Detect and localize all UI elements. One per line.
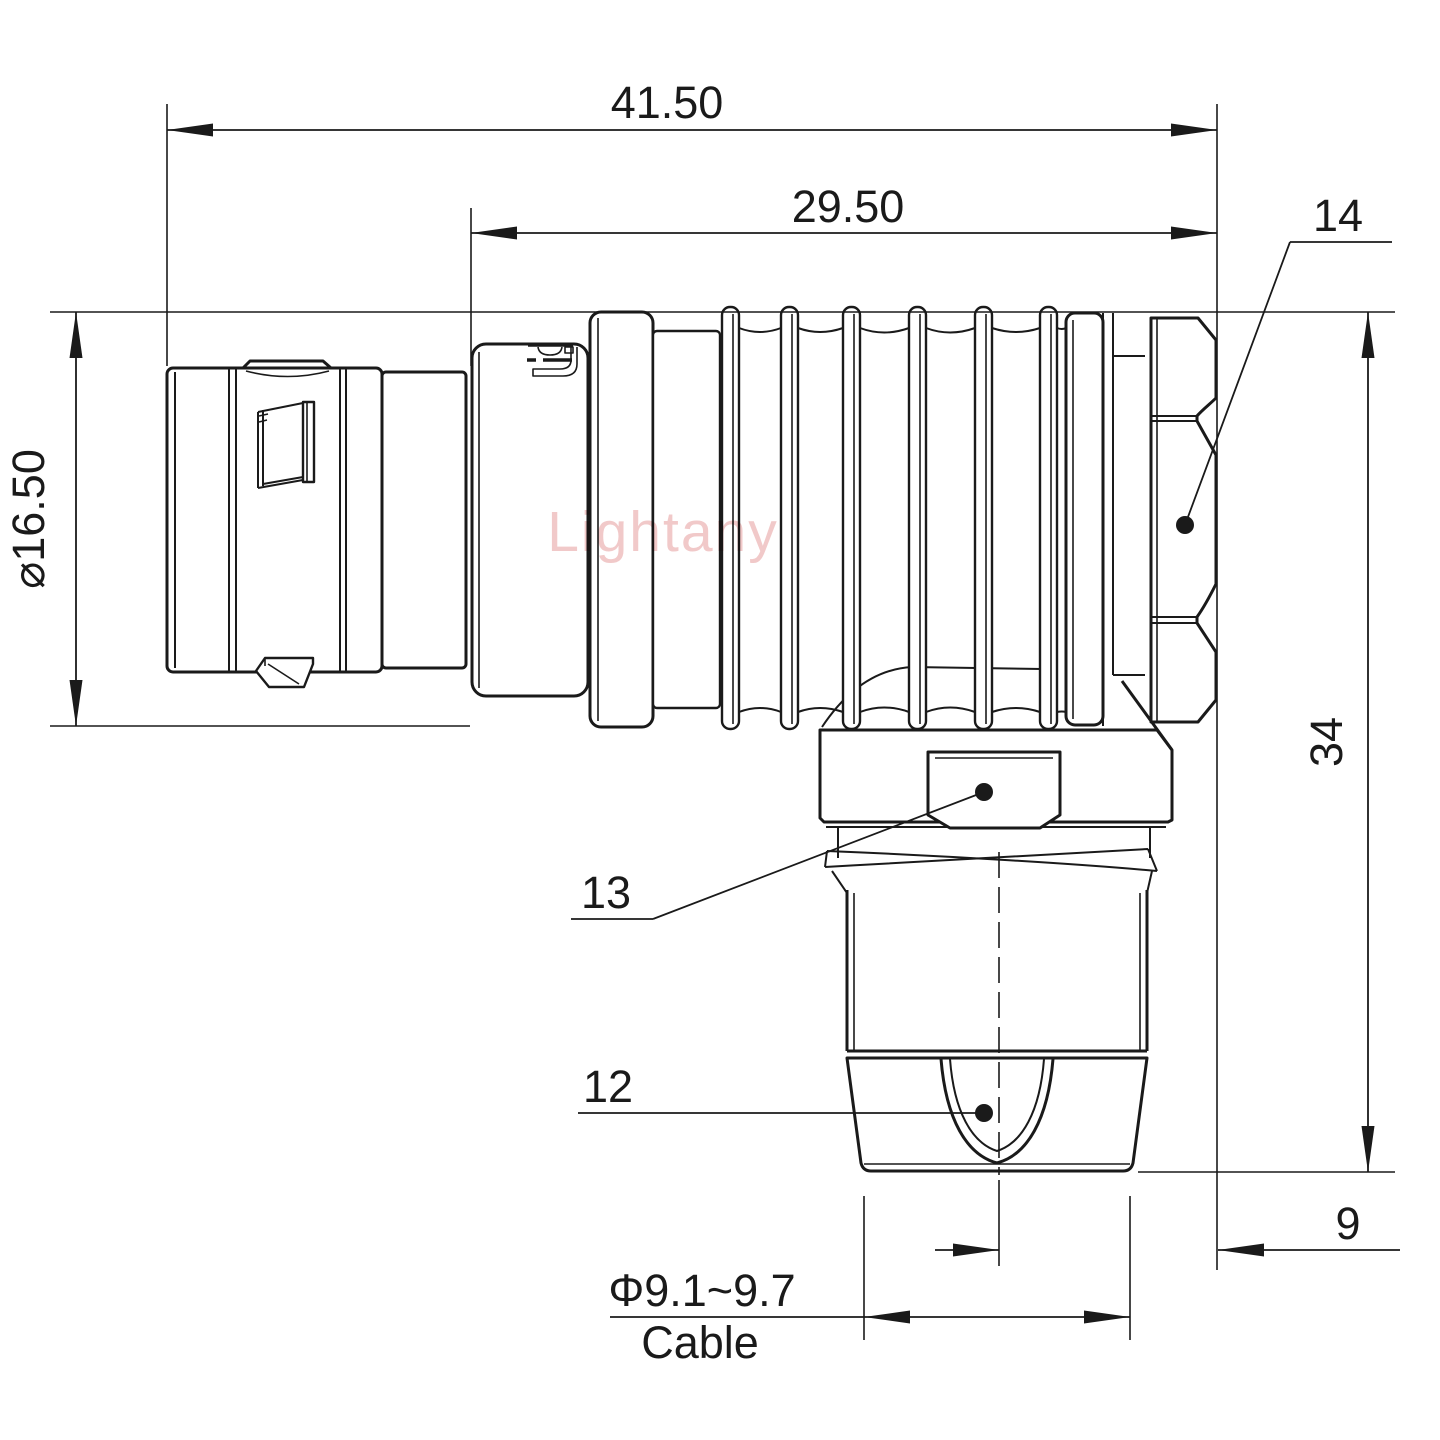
cable-label: Cable: [641, 1317, 759, 1368]
callout-cable-clamp-number: 12: [583, 1061, 633, 1112]
cable-clamp-nut: [847, 1058, 1147, 1171]
bottom-notch: [256, 658, 313, 687]
dim-overall-length-value: 41.50: [611, 77, 724, 128]
cable-barrel: [847, 890, 1147, 1058]
connector-elbow-drawing: Lightany 41.50 29.50: [0, 0, 1440, 1440]
dim-front-length-value: 29.50: [792, 181, 905, 232]
key-bump: [243, 361, 331, 368]
technical-drawing-page: Lightany 41.50 29.50: [0, 0, 1440, 1440]
spanner-flat: [928, 752, 1060, 828]
callout-coupling-nut-number: 14: [1313, 190, 1363, 241]
dim-overall-length: 41.50: [167, 77, 1217, 137]
dim-cable-diameter-value: Φ9.1~9.7: [608, 1265, 795, 1316]
barrel-rear-section: [382, 372, 466, 668]
connector-side-view: [167, 307, 1216, 1171]
dim-front-length: 29.50: [471, 181, 1217, 240]
dim-height: 34: [1301, 312, 1375, 1172]
cap-ring: [1066, 313, 1103, 725]
watermark: Lightany: [547, 500, 779, 564]
dim-cable-diameter: Φ9.1~9.7 Cable: [608, 1265, 1130, 1368]
clamp-collar: [825, 827, 1157, 893]
plug-barrel: [167, 368, 382, 672]
dim-plug-diameter: ⌀16.50: [3, 312, 83, 726]
dim-height-value: 34: [1301, 717, 1352, 767]
dim-axis-offset: 9: [935, 1198, 1400, 1257]
callout-spanner-flat-number: 13: [581, 867, 631, 918]
dim-axis-offset-value: 9: [1335, 1198, 1360, 1249]
dim-plug-diameter-value: ⌀16.50: [3, 449, 54, 589]
